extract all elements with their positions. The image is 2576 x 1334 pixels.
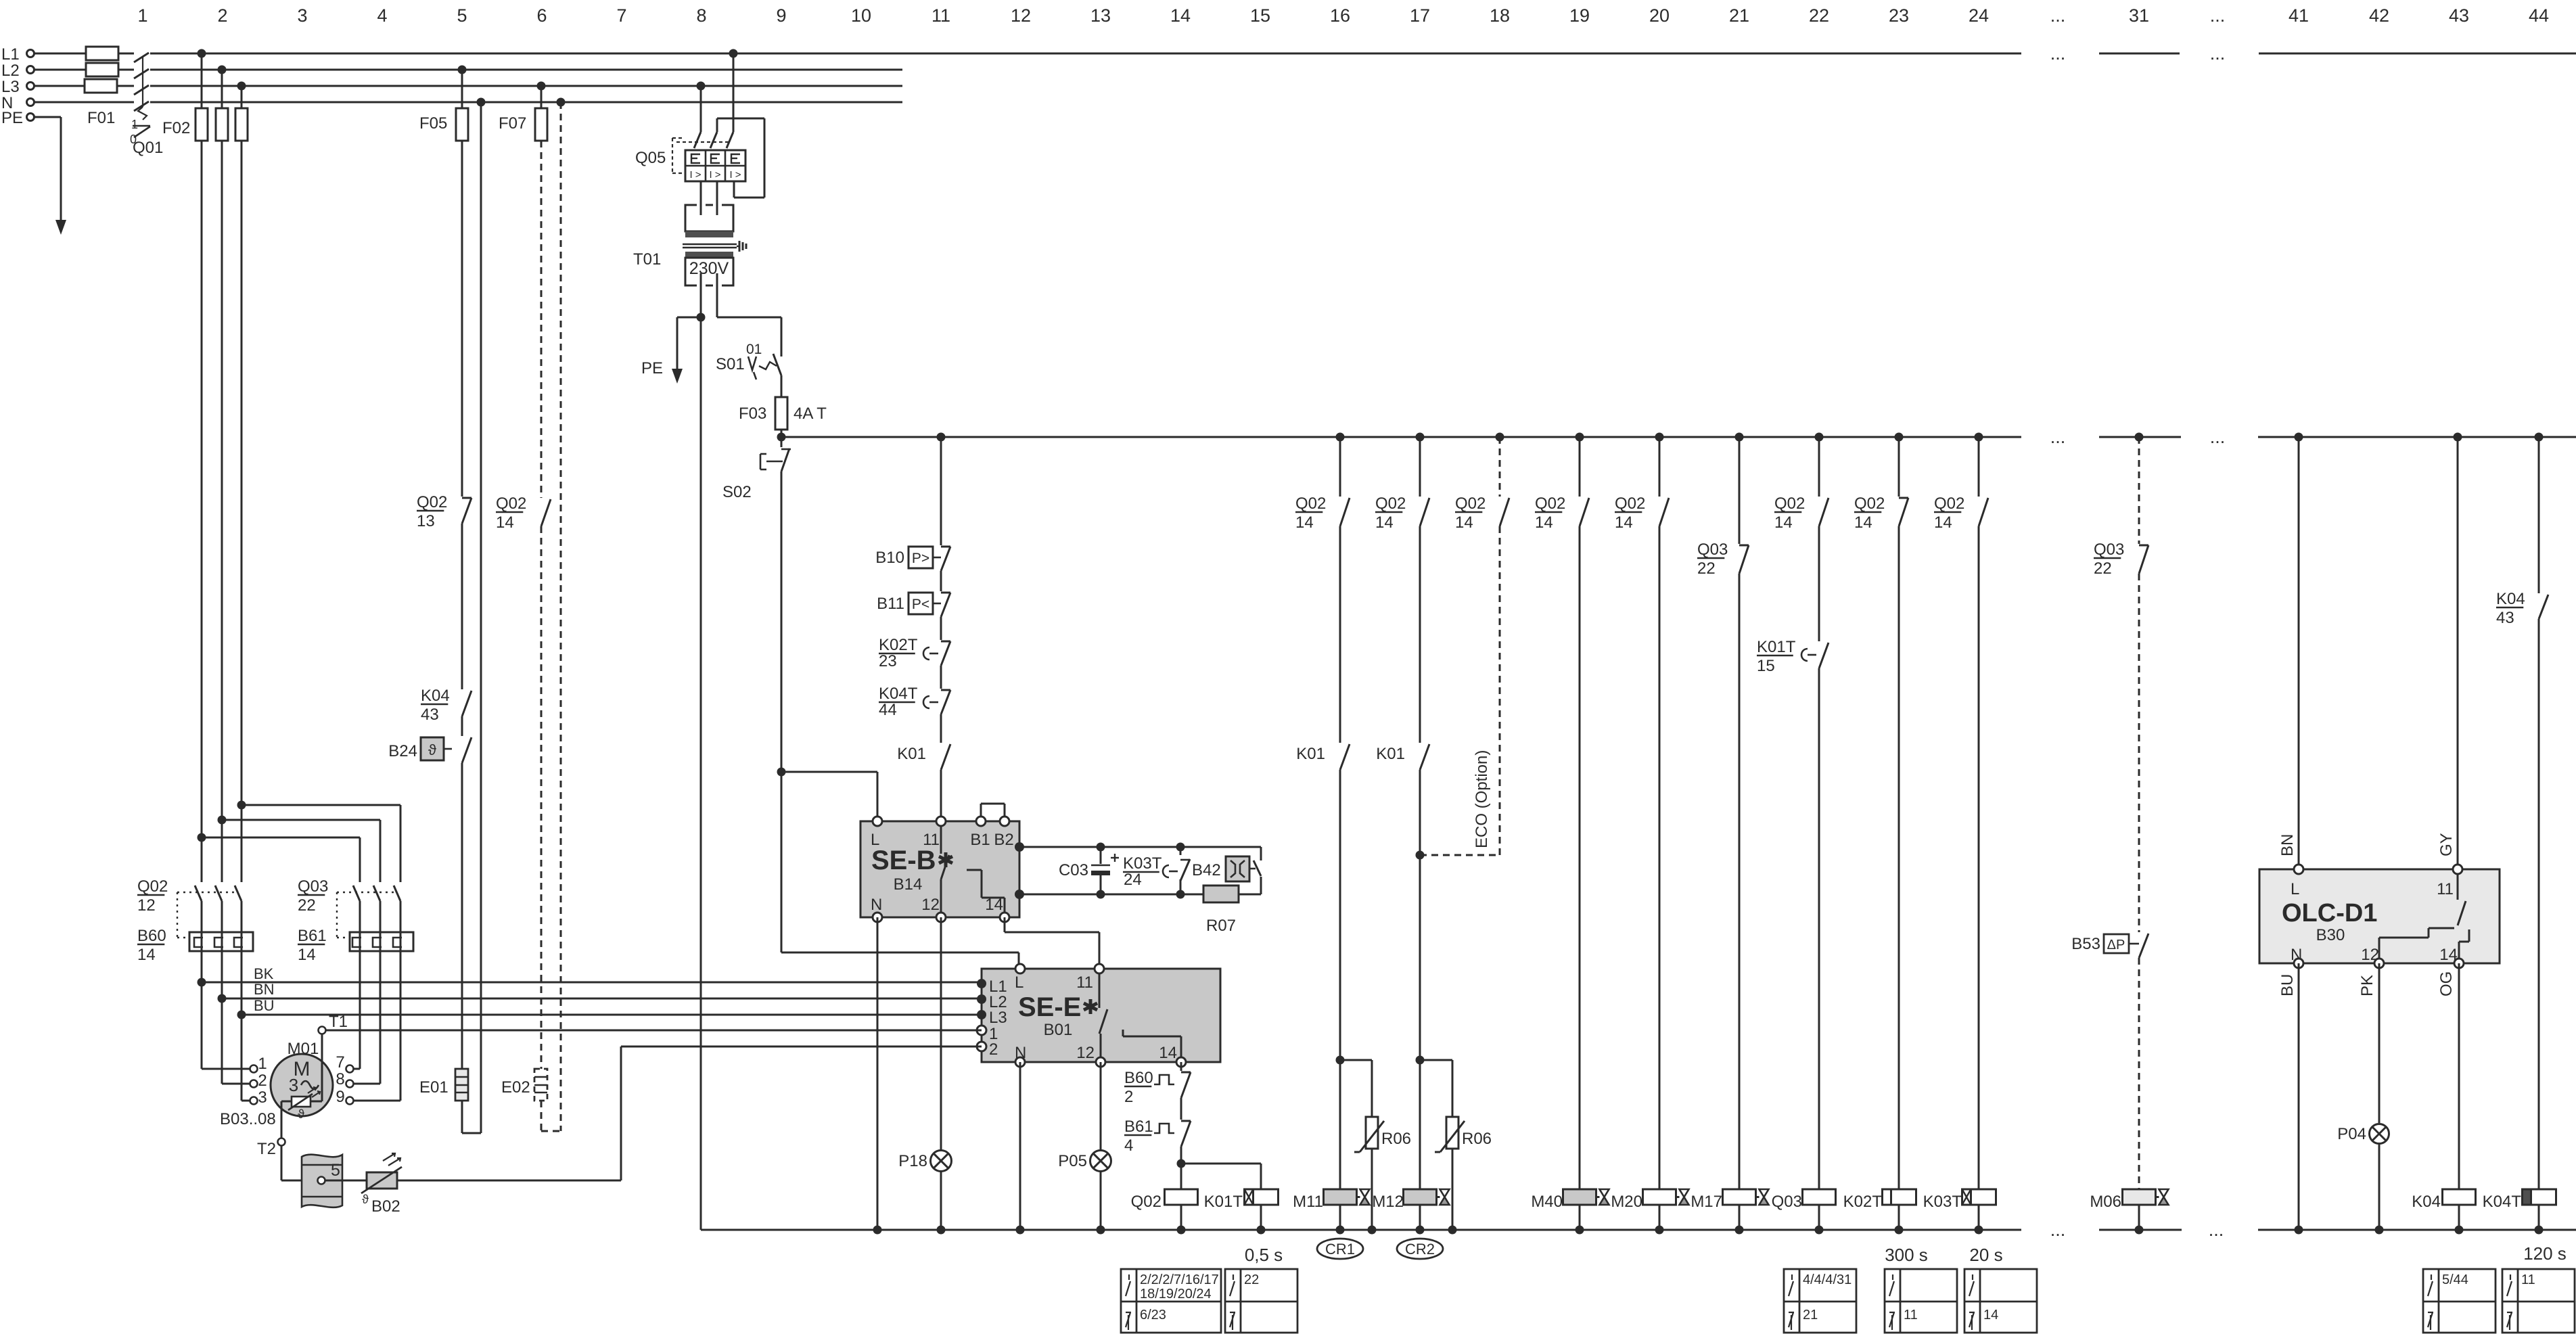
svg-text:M17: M17 [1690, 1193, 1722, 1211]
svg-text:Q02: Q02 [1295, 495, 1326, 513]
svg-text:230V: 230V [689, 259, 729, 278]
svg-text:17: 17 [1410, 5, 1430, 26]
svg-text:B03..08: B03..08 [220, 1110, 276, 1128]
svg-text:19: 19 [1569, 5, 1590, 26]
svg-text:M12: M12 [1372, 1193, 1404, 1211]
svg-text:PE: PE [1, 109, 23, 127]
svg-text:15: 15 [1757, 657, 1775, 675]
svg-text:Q01: Q01 [133, 139, 163, 157]
svg-text:B53: B53 [2071, 935, 2100, 953]
svg-text:2: 2 [1124, 1088, 1133, 1106]
svg-text:20: 20 [1649, 5, 1670, 26]
svg-text:M40: M40 [1531, 1193, 1563, 1211]
svg-text:K04: K04 [421, 687, 450, 705]
svg-text:4A T: 4A T [793, 405, 827, 423]
svg-text:P05: P05 [1058, 1152, 1087, 1170]
svg-text:2: 2 [258, 1072, 267, 1090]
svg-text:15: 15 [1250, 5, 1270, 26]
svg-text:I >: I > [689, 169, 701, 181]
svg-text:K01T: K01T [1204, 1193, 1243, 1211]
svg-text:14: 14 [1295, 513, 1314, 532]
svg-text:120 s: 120 s [2523, 1243, 2567, 1264]
svg-text:18/19/20/24: 18/19/20/24 [1140, 1287, 1212, 1302]
svg-text:S02: S02 [722, 483, 752, 501]
svg-text:Q02: Q02 [1774, 495, 1805, 513]
svg-text:18: 18 [1490, 5, 1510, 26]
svg-text:BU: BU [2278, 974, 2297, 996]
svg-text:B01: B01 [1044, 1021, 1073, 1039]
svg-text:41: 41 [2288, 5, 2309, 26]
svg-text:P18: P18 [898, 1152, 927, 1170]
svg-text:Q03: Q03 [298, 877, 328, 896]
svg-text:2: 2 [217, 5, 227, 26]
svg-text:ϑ: ϑ [298, 1107, 304, 1121]
svg-text:14: 14 [137, 946, 156, 964]
svg-text:10: 10 [851, 5, 871, 26]
svg-text:23: 23 [879, 652, 897, 670]
svg-text:R06: R06 [1381, 1130, 1411, 1148]
svg-text:...: ... [2050, 43, 2066, 64]
svg-text:ΔP: ΔP [2107, 938, 2125, 952]
svg-text:3: 3 [297, 5, 307, 26]
svg-text:22: 22 [2094, 559, 2112, 578]
svg-text:B42: B42 [1192, 861, 1221, 879]
svg-text:12: 12 [1076, 1044, 1095, 1062]
svg-text:L: L [1015, 973, 1024, 992]
svg-text:B30: B30 [2316, 926, 2345, 944]
svg-text:K01: K01 [1376, 745, 1405, 763]
svg-text:C03: C03 [1059, 861, 1088, 879]
svg-text:ϑ: ϑ [362, 1193, 369, 1206]
svg-text:24: 24 [1969, 5, 1989, 26]
svg-text:M06: M06 [2090, 1193, 2121, 1211]
svg-text:3: 3 [289, 1075, 298, 1095]
svg-text:ϑ: ϑ [428, 741, 436, 758]
svg-text:SE-E: SE-E [1018, 992, 1081, 1022]
svg-text:13: 13 [417, 512, 435, 530]
svg-text:300 s: 300 s [1885, 1245, 1928, 1265]
svg-text:Q02: Q02 [417, 493, 447, 511]
svg-text:B10: B10 [875, 549, 904, 567]
svg-text:22: 22 [1244, 1272, 1259, 1287]
svg-text:...: ... [2210, 427, 2226, 447]
svg-text:Q02: Q02 [1854, 495, 1885, 513]
svg-text:E01: E01 [419, 1078, 448, 1097]
svg-text:14: 14 [985, 896, 1003, 914]
svg-text:4: 4 [1124, 1136, 1133, 1155]
svg-text:...: ... [2209, 1220, 2224, 1240]
svg-text:1: 1 [131, 118, 138, 131]
svg-text:8: 8 [696, 5, 706, 26]
svg-text:PK: PK [2358, 975, 2376, 996]
svg-text:Q03: Q03 [2094, 540, 2124, 559]
svg-text:14: 14 [1159, 1044, 1177, 1062]
svg-text:Q02: Q02 [1535, 495, 1565, 513]
svg-text:14: 14 [1455, 513, 1473, 532]
svg-text:CR2: CR2 [1405, 1241, 1435, 1258]
svg-text:I >: I > [729, 169, 741, 181]
svg-text:...: ... [2050, 427, 2066, 447]
svg-text:CR1: CR1 [1325, 1241, 1355, 1258]
svg-text:Q02: Q02 [1615, 495, 1645, 513]
svg-text:31: 31 [2129, 5, 2149, 26]
svg-text:L3: L3 [1, 78, 20, 96]
svg-text:12: 12 [137, 896, 156, 915]
svg-text:B14: B14 [894, 875, 923, 894]
svg-text:K01: K01 [897, 745, 926, 763]
svg-text:P>: P> [912, 551, 929, 566]
svg-text:Q02: Q02 [137, 877, 168, 896]
svg-text:6: 6 [536, 5, 547, 26]
svg-text:R06: R06 [1462, 1130, 1492, 1148]
svg-text:F03: F03 [739, 405, 766, 423]
svg-text:F05: F05 [419, 114, 447, 133]
svg-text:F01: F01 [87, 109, 115, 127]
svg-text:GY: GY [2437, 833, 2456, 856]
svg-text:Q05: Q05 [635, 149, 666, 167]
svg-text:OLC-D1: OLC-D1 [2282, 899, 2377, 927]
svg-text:Q03: Q03 [1697, 540, 1728, 559]
svg-text:11: 11 [1904, 1308, 1918, 1322]
svg-text:L: L [2291, 880, 2299, 898]
svg-text:44: 44 [2529, 5, 2549, 26]
svg-text:20 s: 20 s [1969, 1245, 2002, 1265]
svg-text:...: ... [2050, 1220, 2066, 1240]
svg-text:13: 13 [1090, 5, 1111, 26]
svg-text:B02: B02 [371, 1197, 400, 1216]
svg-text:Q03: Q03 [1772, 1193, 1802, 1211]
svg-text:7: 7 [616, 5, 626, 26]
svg-text:M20: M20 [1611, 1193, 1642, 1211]
svg-text:F07: F07 [499, 114, 526, 133]
svg-text:K04: K04 [2496, 590, 2525, 608]
svg-text:11: 11 [923, 831, 940, 849]
svg-text:14: 14 [298, 946, 316, 964]
svg-text:14: 14 [1615, 513, 1633, 532]
svg-text:14: 14 [1934, 513, 1952, 532]
svg-text:BN: BN [254, 981, 275, 998]
svg-text:1: 1 [258, 1055, 267, 1073]
svg-text:L: L [871, 831, 879, 849]
svg-text:Q02: Q02 [1131, 1193, 1161, 1211]
svg-text:P04: P04 [2337, 1125, 2366, 1143]
svg-text:K03T: K03T [1123, 854, 1162, 873]
svg-text:P<: P< [912, 597, 929, 612]
svg-text:4: 4 [377, 5, 387, 26]
svg-text:K04T: K04T [2483, 1193, 2522, 1211]
svg-text:B24: B24 [388, 742, 417, 760]
svg-text:11: 11 [1076, 973, 1093, 992]
svg-text:B60: B60 [137, 927, 166, 945]
svg-text:OG: OG [2437, 971, 2456, 996]
svg-text:T1: T1 [329, 1013, 348, 1031]
svg-text:L2: L2 [1, 62, 20, 80]
svg-text:42: 42 [2369, 5, 2389, 26]
svg-text:T01: T01 [633, 250, 661, 269]
svg-text:...: ... [2050, 5, 2066, 26]
svg-text:ECO (Option): ECO (Option) [1473, 750, 1491, 848]
svg-text:14: 14 [1774, 513, 1793, 532]
svg-text:SE-B: SE-B [871, 846, 936, 875]
svg-text:01: 01 [746, 342, 762, 357]
svg-text:24: 24 [1124, 871, 1142, 889]
svg-text:11: 11 [2521, 1272, 2535, 1287]
svg-text:BN: BN [2278, 834, 2297, 856]
svg-text:Q02: Q02 [1455, 495, 1486, 513]
svg-text:6/23: 6/23 [1140, 1308, 1166, 1322]
svg-text:14: 14 [1375, 513, 1394, 532]
svg-text:9: 9 [336, 1088, 344, 1106]
svg-text:14: 14 [1983, 1308, 1998, 1322]
svg-text:Q02: Q02 [496, 495, 526, 513]
svg-text:2: 2 [989, 1040, 998, 1059]
svg-text:0,5 s: 0,5 s [1245, 1245, 1283, 1265]
svg-text:22: 22 [1809, 5, 1829, 26]
svg-text:4/4/4/31: 4/4/4/31 [1803, 1272, 1851, 1287]
svg-text:B2: B2 [994, 831, 1013, 849]
svg-text:K04: K04 [2412, 1193, 2441, 1211]
svg-text:PE: PE [641, 359, 663, 377]
svg-text:R07: R07 [1206, 917, 1236, 935]
svg-text:Q02: Q02 [1934, 495, 1964, 513]
svg-text:B1: B1 [970, 831, 990, 849]
svg-text:K02T: K02T [879, 636, 918, 654]
svg-text:14: 14 [1535, 513, 1553, 532]
svg-text:E02: E02 [501, 1078, 530, 1097]
svg-text:14: 14 [1854, 513, 1872, 532]
svg-text:K01T: K01T [1757, 638, 1796, 656]
svg-text:N: N [871, 896, 882, 914]
svg-text:23: 23 [1889, 5, 1909, 26]
svg-text:BU: BU [254, 997, 275, 1014]
svg-text:11: 11 [931, 5, 950, 26]
svg-text:7: 7 [336, 1053, 344, 1072]
svg-text:S01: S01 [716, 355, 745, 373]
svg-text:K02T: K02T [1843, 1193, 1883, 1211]
svg-text:T2: T2 [257, 1140, 276, 1158]
svg-text:Q02: Q02 [1375, 495, 1406, 513]
svg-text:21: 21 [1803, 1308, 1818, 1322]
svg-text:44: 44 [879, 701, 897, 719]
svg-text:43: 43 [2449, 5, 2469, 26]
svg-text:B11: B11 [877, 595, 904, 613]
svg-text:...: ... [2210, 43, 2226, 64]
svg-text:5: 5 [457, 5, 467, 26]
svg-text:21: 21 [1729, 5, 1749, 26]
svg-text:16: 16 [1330, 5, 1350, 26]
svg-text:43: 43 [2496, 609, 2514, 627]
svg-text:14: 14 [496, 513, 514, 532]
svg-text:K03T: K03T [1923, 1193, 1962, 1211]
svg-text:3: 3 [258, 1088, 267, 1107]
svg-text:F02: F02 [162, 119, 190, 137]
svg-text:B61: B61 [1124, 1118, 1153, 1136]
svg-text:BK: BK [254, 965, 274, 982]
svg-text:5/44: 5/44 [2442, 1272, 2468, 1287]
svg-text:1: 1 [137, 5, 147, 26]
svg-text:I >: I > [709, 169, 720, 181]
svg-text:5: 5 [331, 1161, 340, 1180]
svg-text:9: 9 [776, 5, 786, 26]
svg-text:22: 22 [1697, 559, 1716, 578]
svg-text:M11: M11 [1293, 1193, 1323, 1211]
svg-text:8: 8 [336, 1070, 344, 1088]
svg-text:22: 22 [298, 896, 316, 915]
svg-text:43: 43 [421, 706, 439, 724]
svg-text:B60: B60 [1124, 1069, 1153, 1087]
svg-text:2/2/2/7/16/17: 2/2/2/7/16/17 [1140, 1272, 1219, 1287]
svg-text:11: 11 [2437, 880, 2454, 898]
svg-text:14: 14 [1170, 5, 1191, 26]
svg-text:K04T: K04T [879, 685, 918, 703]
svg-text:K01: K01 [1296, 745, 1325, 763]
svg-text:L3: L3 [989, 1009, 1007, 1027]
svg-text:L1: L1 [1, 45, 20, 64]
svg-text:B61: B61 [298, 927, 327, 945]
svg-text:12: 12 [1011, 5, 1031, 26]
svg-text:...: ... [2210, 5, 2226, 26]
svg-text:12: 12 [921, 896, 940, 914]
